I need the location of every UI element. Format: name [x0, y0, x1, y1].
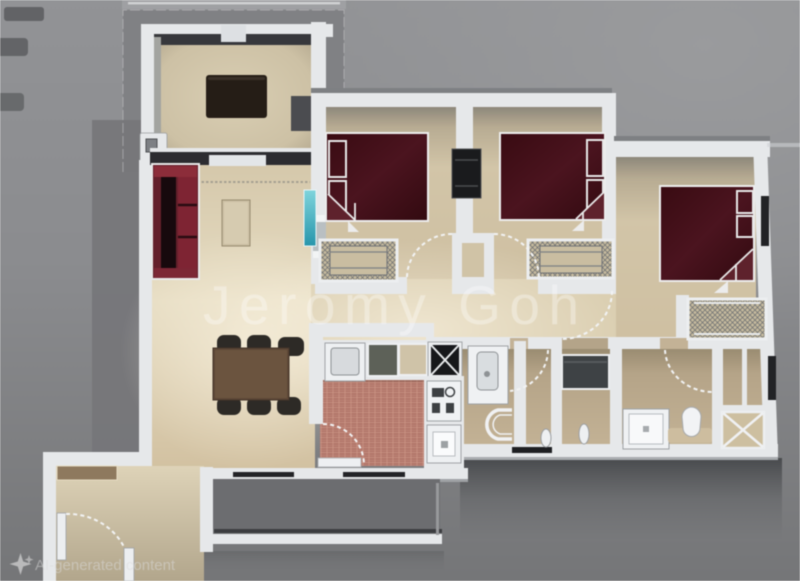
svg-text:Jeromy Goh: Jeromy Goh [203, 274, 588, 336]
svg-text:AI-generated content: AI-generated content [35, 557, 176, 574]
